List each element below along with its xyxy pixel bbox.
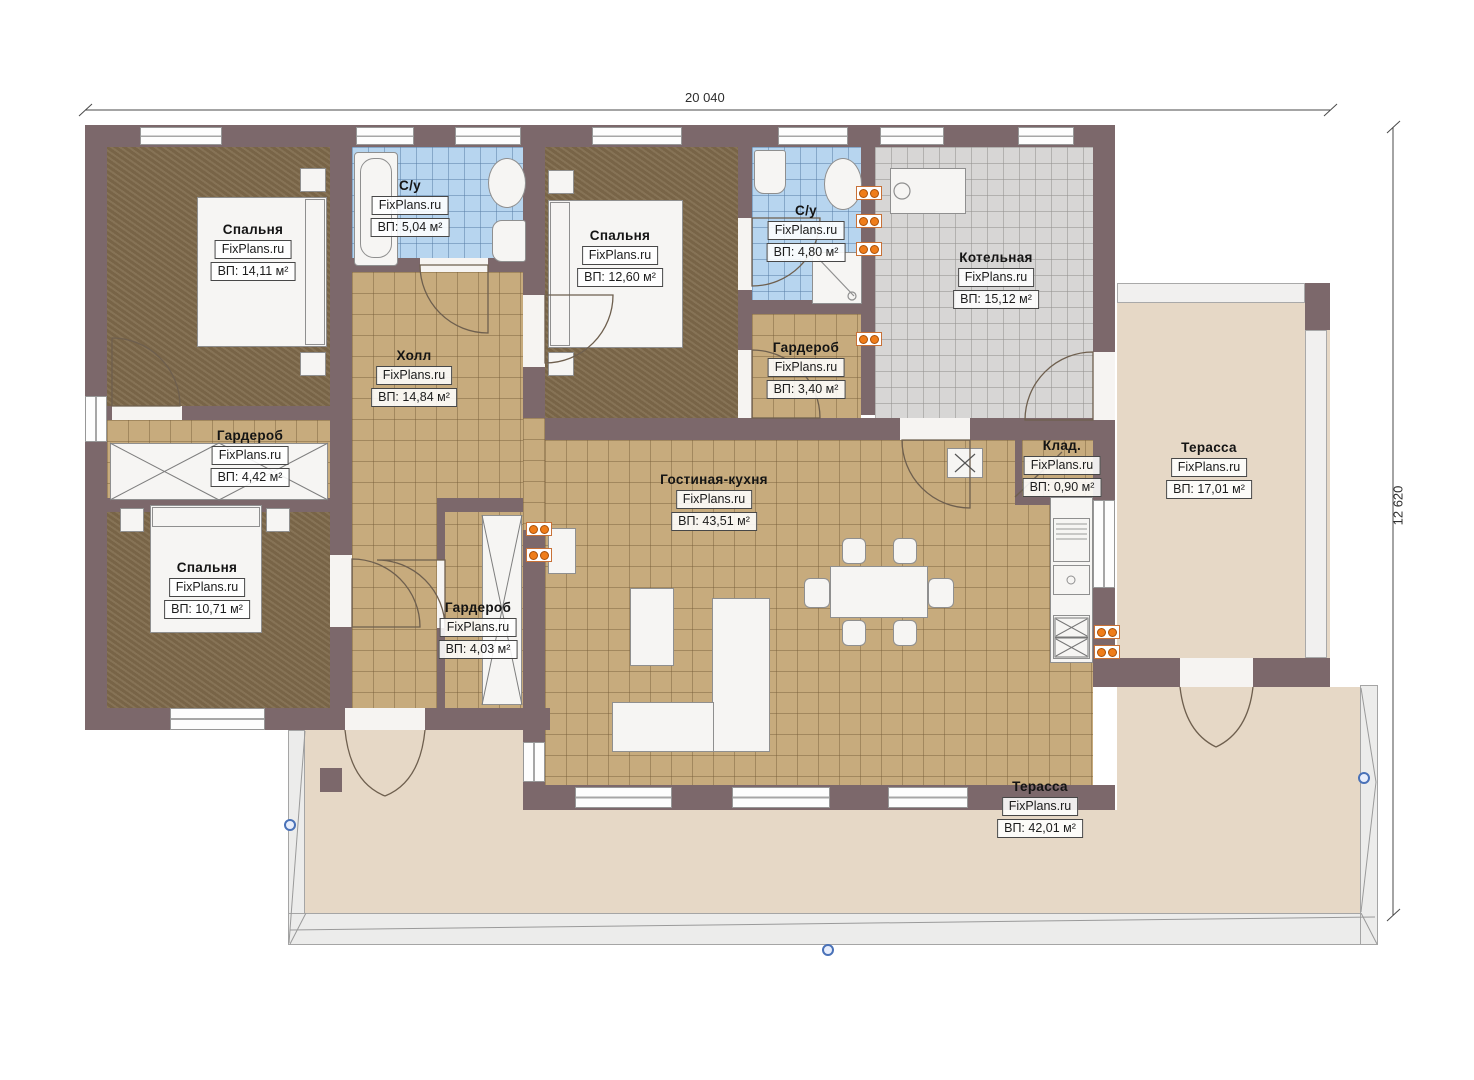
radiator-dot <box>1097 648 1106 657</box>
radiator-dot <box>540 551 549 560</box>
room-name: С/у <box>795 203 817 218</box>
radiator-dot <box>859 335 868 344</box>
room-name: Котельная <box>959 250 1032 265</box>
sink1 <box>488 158 526 208</box>
radiator-kitchen-1 <box>1094 625 1120 639</box>
door-opening-bedroom2 <box>523 295 545 367</box>
watermark: FixPlans.ru <box>169 578 246 597</box>
dining-chair-1 <box>842 538 866 564</box>
radiator-boiler-2 <box>856 214 882 228</box>
terrace-right-rail-side <box>1305 330 1327 658</box>
room-area: ВП: 4,42 м² <box>211 468 290 487</box>
bed1-nightstand-top <box>300 168 326 192</box>
radiator-dot <box>870 245 879 254</box>
room-area: ВП: 4,80 м² <box>767 243 846 262</box>
window-top-bedroom1 <box>140 127 222 145</box>
survey-marker-left <box>284 819 296 831</box>
radiator-dot <box>859 217 868 226</box>
room-label-bedroom1: Спальня FixPlans.ru ВП: 14,11 м² <box>211 222 296 281</box>
radiator-dot <box>529 551 538 560</box>
room-area: ВП: 17,01 м² <box>1166 480 1252 499</box>
room-label-hall: Холл FixPlans.ru ВП: 14,84 м² <box>371 348 457 407</box>
room-label-living-kitchen: Гостиная-кухня FixPlans.ru ВП: 43,51 м² <box>660 472 768 531</box>
watermark: FixPlans.ru <box>1002 797 1079 816</box>
room-area: ВП: 15,12 м² <box>953 290 1039 309</box>
bed3-headboard <box>152 507 260 527</box>
watermark: FixPlans.ru <box>582 246 659 265</box>
terrace-pillar <box>320 768 342 792</box>
window-top-bath2 <box>778 127 848 145</box>
window-top-bath1a <box>356 127 414 145</box>
dining-table <box>830 566 928 618</box>
bed2-headboard <box>550 202 570 346</box>
room-label-bathroom2: С/у FixPlans.ru ВП: 4,80 м² <box>767 203 846 262</box>
window-top-boiler-b <box>1018 127 1074 145</box>
watermark: FixPlans.ru <box>1171 458 1248 477</box>
survey-marker-right <box>1358 772 1370 784</box>
terrace-corner-post <box>1305 283 1330 330</box>
window-top-bedroom2 <box>592 127 682 145</box>
room-name: Спальня <box>223 222 283 237</box>
dining-chair-5 <box>804 578 830 608</box>
room-area: ВП: 3,40 м² <box>767 380 846 399</box>
dimension-height-label: 12 620 <box>1390 486 1405 526</box>
kitchen-stove <box>1053 615 1090 659</box>
bed3-nightstand-left <box>120 508 144 532</box>
window-bottom-bedroom3 <box>170 708 265 730</box>
floor-plan-canvas: Спальня FixPlans.ru ВП: 14,11 м² С/у Fix… <box>0 0 1474 1080</box>
window-right-kitchen <box>1093 500 1115 588</box>
door-opening-entrance <box>1093 352 1115 420</box>
wall-v2-upper <box>523 147 545 418</box>
bed1-nightstand-bottom <box>300 352 326 376</box>
room-label-bedroom2: Спальня FixPlans.ru ВП: 12,60 м² <box>577 228 663 287</box>
room-area: ВП: 43,51 м² <box>671 512 757 531</box>
room-name: Холл <box>396 348 431 363</box>
radiator-boiler-3 <box>856 242 882 256</box>
door-opening-bedroom3 <box>330 555 352 627</box>
room-name: Гардероб <box>445 600 511 615</box>
room-label-bathroom1: С/у FixPlans.ru ВП: 5,04 м² <box>371 178 450 237</box>
bed1-headboard <box>305 199 325 345</box>
window-step-living <box>523 742 545 782</box>
room-label-terrace-right: Терасса FixPlans.ru ВП: 17,01 м² <box>1166 440 1252 499</box>
watermark: FixPlans.ru <box>440 618 517 637</box>
door-opening-hall-terrace <box>345 708 425 730</box>
radiator-kitchen-2 <box>1094 645 1120 659</box>
tv-stand <box>548 528 576 574</box>
kitchen-fridge <box>1053 518 1090 562</box>
door-opening-boiler <box>900 418 970 440</box>
radiator-dot <box>540 525 549 534</box>
window-living-bottom-a <box>575 787 672 808</box>
room-area: ВП: 14,84 м² <box>371 388 457 407</box>
watermark: FixPlans.ru <box>372 196 449 215</box>
dining-chair-6 <box>928 578 954 608</box>
watermark: FixPlans.ru <box>212 446 289 465</box>
hall-living-passage-floor <box>523 418 545 530</box>
room-area: ВП: 14,11 м² <box>211 262 296 281</box>
survey-marker-bottom <box>822 944 834 956</box>
door-opening-bathroom1 <box>420 258 488 272</box>
dimension-width-label: 20 040 <box>685 90 725 105</box>
room-area: ВП: 42,01 м² <box>997 819 1083 838</box>
toilet2 <box>754 150 786 194</box>
window-left-wardrobe1 <box>85 396 107 442</box>
radiator-dot <box>1108 648 1117 657</box>
terrace-bottom-floor-right <box>1117 687 1360 913</box>
radiator-boiler-1 <box>856 186 882 200</box>
watermark: FixPlans.ru <box>676 490 753 509</box>
room-label-terrace-bottom: Терасса FixPlans.ru ВП: 42,01 м² <box>997 779 1083 838</box>
radiator-living-1 <box>526 522 552 536</box>
door-opening-bedroom1 <box>112 406 182 420</box>
sofa-chaise <box>612 702 714 752</box>
room-name: Терасса <box>1012 779 1068 794</box>
room-area: ВП: 5,04 м² <box>371 218 450 237</box>
room-name: Клад. <box>1043 438 1081 453</box>
toilet1 <box>492 220 526 262</box>
dining-chair-4 <box>893 620 917 646</box>
room-label-bedroom3: Спальня FixPlans.ru ВП: 10,71 м² <box>164 560 250 619</box>
room-label-wardrobe2: Гардероб FixPlans.ru ВП: 3,40 м² <box>767 340 846 399</box>
watermark: FixPlans.ru <box>376 366 453 385</box>
watermark: FixPlans.ru <box>958 268 1035 287</box>
terrace-bottom-floor-left <box>305 730 545 913</box>
radiator-dot <box>1097 628 1106 637</box>
window-top-boiler-a <box>880 127 944 145</box>
coffee-table <box>630 588 674 666</box>
wall-storage-left <box>1015 440 1022 497</box>
room-area: ВП: 12,60 м² <box>577 268 663 287</box>
room-name: С/у <box>399 178 421 193</box>
room-area: ВП: 10,71 м² <box>164 600 250 619</box>
radiator-dot <box>1108 628 1117 637</box>
kitchen-sink <box>1053 565 1090 595</box>
room-label-wardrobe3: Гардероб FixPlans.ru ВП: 4,03 м² <box>439 600 518 659</box>
wall-exterior-bottom-left <box>85 708 550 730</box>
door-opening-wardrobe2 <box>738 350 752 418</box>
terrace-right-rail-top <box>1117 283 1305 303</box>
watermark: FixPlans.ru <box>1024 456 1101 475</box>
radiator-boiler-4 <box>856 332 882 346</box>
room-label-boiler: Котельная FixPlans.ru ВП: 15,12 м² <box>953 250 1039 309</box>
room-name: Спальня <box>590 228 650 243</box>
wall-living-top <box>545 418 1093 440</box>
watermark: FixPlans.ru <box>768 358 845 377</box>
room-name: Терасса <box>1181 440 1237 455</box>
boiler-unit <box>890 168 966 214</box>
dining-chair-2 <box>893 538 917 564</box>
bed2-nightstand-bottom <box>548 352 574 376</box>
wall-wardrobe3-top <box>437 498 523 512</box>
bed3-nightstand-right <box>266 508 290 532</box>
room-area: ВП: 4,03 м² <box>439 640 518 659</box>
room-label-storage: Клад. FixPlans.ru ВП: 0,90 м² <box>1023 438 1102 497</box>
room-name: Гостиная-кухня <box>660 472 768 487</box>
window-living-bottom-b <box>732 787 830 808</box>
terrace-edge-bottom <box>288 913 1378 945</box>
window-top-bath1b <box>455 127 521 145</box>
door-opening-french <box>1180 658 1253 687</box>
hatch-marker-box <box>947 448 983 478</box>
radiator-dot <box>529 525 538 534</box>
door-opening-bathroom2 <box>738 218 752 290</box>
radiator-dot <box>870 189 879 198</box>
radiator-dot <box>870 217 879 226</box>
room-name: Спальня <box>177 560 237 575</box>
room-name: Гардероб <box>773 340 839 355</box>
dining-chair-3 <box>842 620 866 646</box>
sofa-vertical <box>712 598 770 752</box>
window-living-bottom-c <box>888 787 968 808</box>
terrace-edge-right <box>1360 685 1378 945</box>
bed2-nightstand-top <box>548 170 574 194</box>
watermark: FixPlans.ru <box>768 221 845 240</box>
radiator-dot <box>859 189 868 198</box>
watermark: FixPlans.ru <box>215 240 292 259</box>
radiator-living-2 <box>526 548 552 562</box>
room-area: ВП: 0,90 м² <box>1023 478 1102 497</box>
radiator-dot <box>859 245 868 254</box>
room-name: Гардероб <box>217 428 283 443</box>
room-label-wardrobe1: Гардероб FixPlans.ru ВП: 4,42 м² <box>211 428 290 487</box>
radiator-dot <box>870 335 879 344</box>
